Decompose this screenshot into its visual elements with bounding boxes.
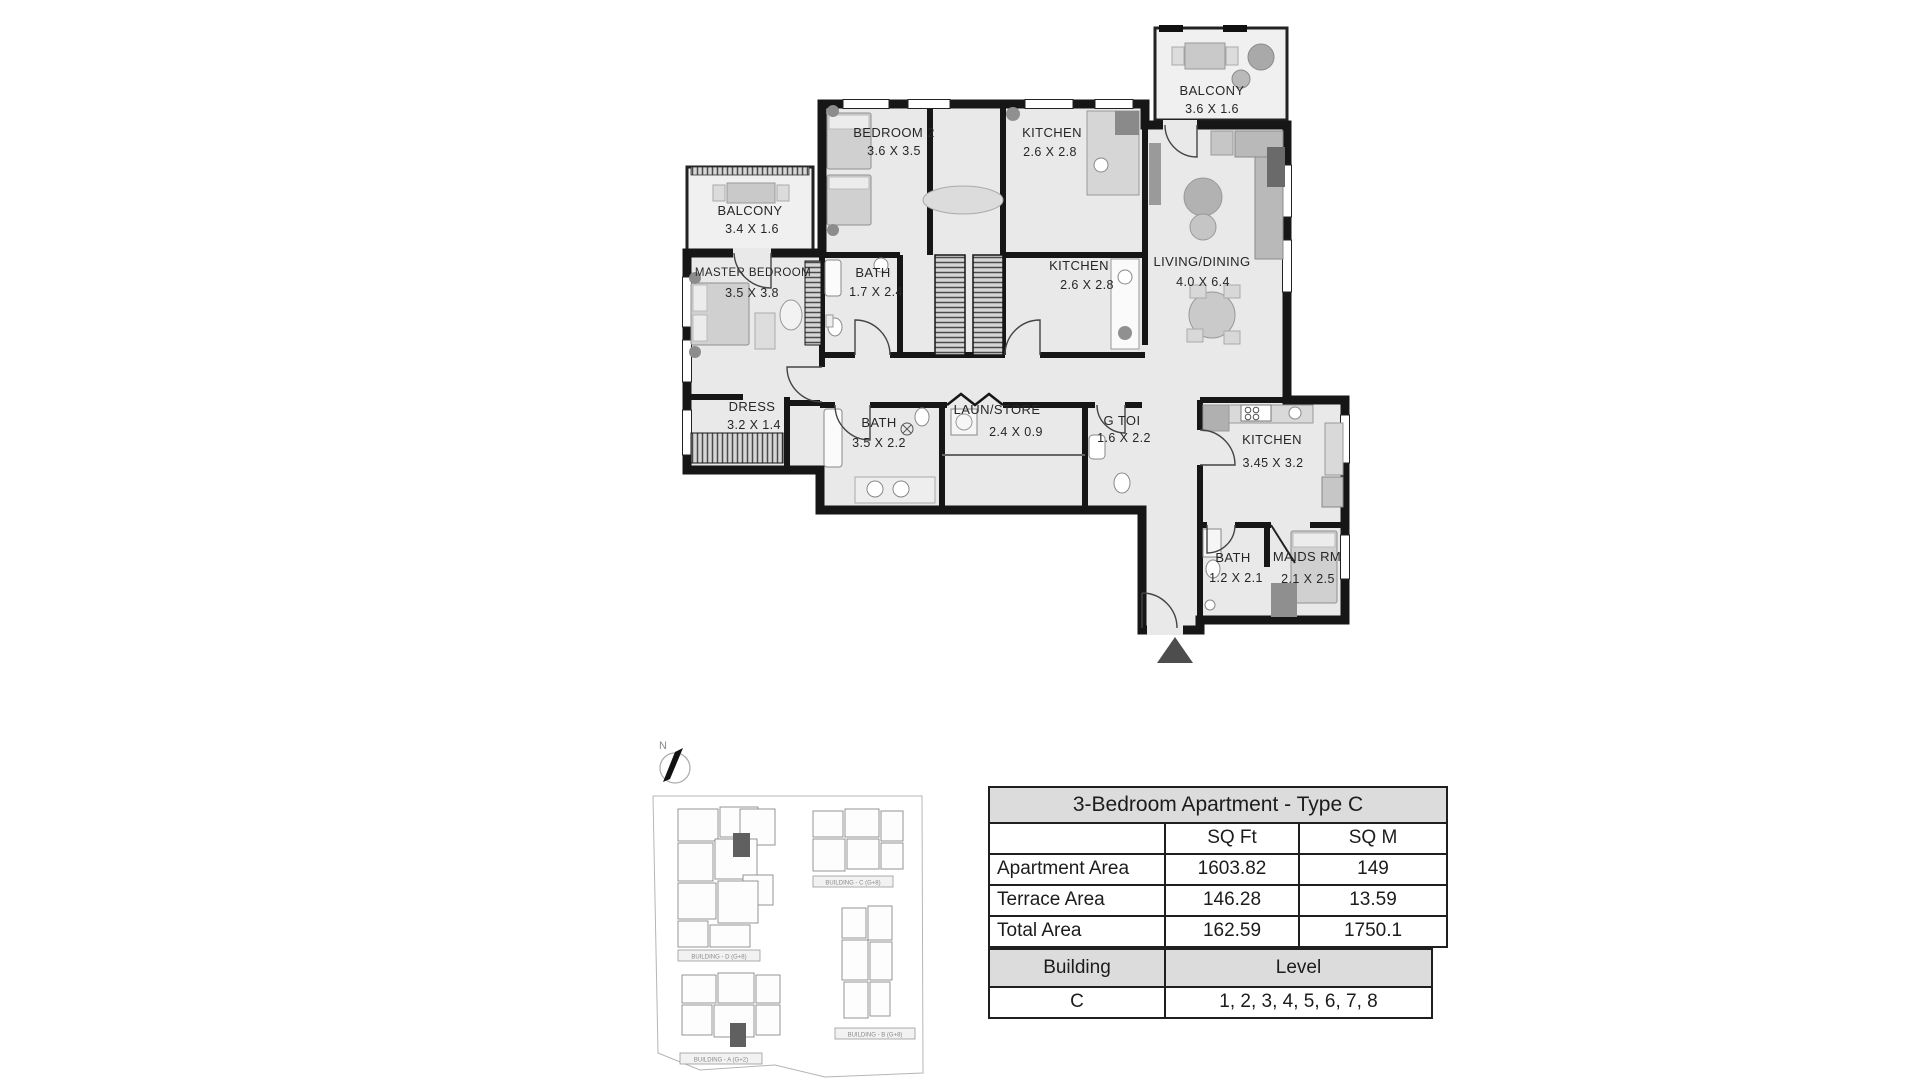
room-label-kitchen345: KITCHEN [1242,432,1302,447]
table-row: C 1, 2, 3, 4, 5, 6, 7, 8 [989,987,1432,1018]
building-value: C [989,987,1165,1018]
building-d [678,807,775,947]
building-a [682,973,780,1047]
room-dims-bath35: 3.5 X 2.2 [852,436,906,450]
room-dims-bath12: 1.2 X 2.1 [1209,571,1263,585]
row-sqft: 146.28 [1165,885,1299,916]
building-b-label: BUILDING - B (G+8) [848,1033,903,1039]
row-sqft: 162.59 [1165,916,1299,947]
north-label: N [659,740,667,752]
room-label-kitchen-top: KITCHEN [1022,125,1082,140]
room-label-dress: DRESS [729,399,776,414]
building-table: Building Level C 1, 2, 3, 4, 5, 6, 7, 8 [988,948,1433,1019]
room-label-gtoi: G TOI [1104,413,1141,428]
row-sqm: 1750.1 [1299,916,1447,947]
room-dims-maids: 2.1 X 2.5 [1281,572,1335,586]
area-table-title-row: 3-Bedroom Apartment - Type C [989,787,1447,823]
room-label-laundry: LAUN/STORE [954,402,1041,417]
balcony-railing [691,167,809,175]
row-sqm: 13.59 [1299,885,1447,916]
room-label-maids: MAIDS RM [1273,549,1341,564]
room-dims-kitchen2: 2.6 X 2.8 [1060,278,1114,292]
building-col-header: Building [989,949,1165,987]
floor-plan: BEDROOM 2 3.6 X 3.5 KITCHEN 2.6 X 2.8 BA… [675,15,1375,675]
building-c [813,809,903,871]
level-col-header: Level [1165,949,1432,987]
table-row: Total Area 162.59 1750.1 [989,916,1447,947]
room-dims-master: 3.5 X 3.8 [725,286,779,300]
room-label-bath35: BATH [861,415,896,430]
area-col-blank [989,823,1165,854]
north-arrow-icon: N [659,740,690,783]
building-a-label: BUILDING - A (G+2) [694,1058,748,1064]
area-table-title: 3-Bedroom Apartment - Type C [989,787,1447,823]
building-b [842,906,892,1018]
site-plan: N BUILDING - D (G+8) BUILDING - C (G+8) … [645,735,935,1080]
area-table-header-row: SQ Ft SQ M [989,823,1447,854]
highlighted-unit [730,1023,746,1047]
dress-closet [691,433,783,463]
room-dims-kitchen-top: 2.6 X 2.8 [1023,145,1077,159]
area-table: 3-Bedroom Apartment - Type C SQ Ft SQ M … [988,786,1448,948]
row-label: Total Area [989,916,1165,947]
room-label-kitchen2: KITCHEN [1049,258,1109,273]
room-label-bath12: BATH [1215,550,1250,565]
entrance-arrow [1157,637,1193,663]
level-value: 1, 2, 3, 4, 5, 6, 7, 8 [1165,987,1432,1018]
wardrobe [935,255,965,355]
area-col-sqm: SQ M [1299,823,1447,854]
highlighted-unit [733,833,750,857]
row-sqft: 1603.82 [1165,854,1299,885]
room-dims-laundry: 2.4 X 0.9 [989,425,1043,439]
table-row: Terrace Area 146.28 13.59 [989,885,1447,916]
room-label-balcony-tr: BALCONY [1180,83,1245,98]
room-label-master: MASTER BEDROOM [695,267,811,279]
row-label: Terrace Area [989,885,1165,916]
building-d-label: BUILDING - D (G+8) [691,955,746,961]
table-row: Apartment Area 1603.82 149 [989,854,1447,885]
room-dims-gtoi: 1.6 X 2.2 [1097,431,1151,445]
room-dims-bath17: 1.7 X 2.4 [849,285,903,299]
building-c-label: BUILDING - C (G+8) [825,881,880,887]
room-dims-balcony-left: 3.4 X 1.6 [725,222,779,236]
wardrobe [973,255,1003,355]
room-label-balcony-left: BALCONY [718,203,783,218]
room-dims-balcony-tr: 3.6 X 1.6 [1185,102,1239,116]
row-label: Apartment Area [989,854,1165,885]
room-label-living: LIVING/DINING [1154,254,1251,269]
room-label-bedroom2: BEDROOM 2 [853,125,935,140]
room-dims-kitchen345: 3.45 X 3.2 [1243,456,1304,470]
room-dims-bedroom2: 3.6 X 3.5 [867,144,921,158]
room-label-bath17: BATH [855,265,890,280]
room-dims-dress: 3.2 X 1.4 [727,418,781,432]
area-col-sqft: SQ Ft [1165,823,1299,854]
building-table-header-row: Building Level [989,949,1432,987]
row-sqm: 149 [1299,854,1447,885]
room-dims-living: 4.0 X 6.4 [1176,275,1230,289]
